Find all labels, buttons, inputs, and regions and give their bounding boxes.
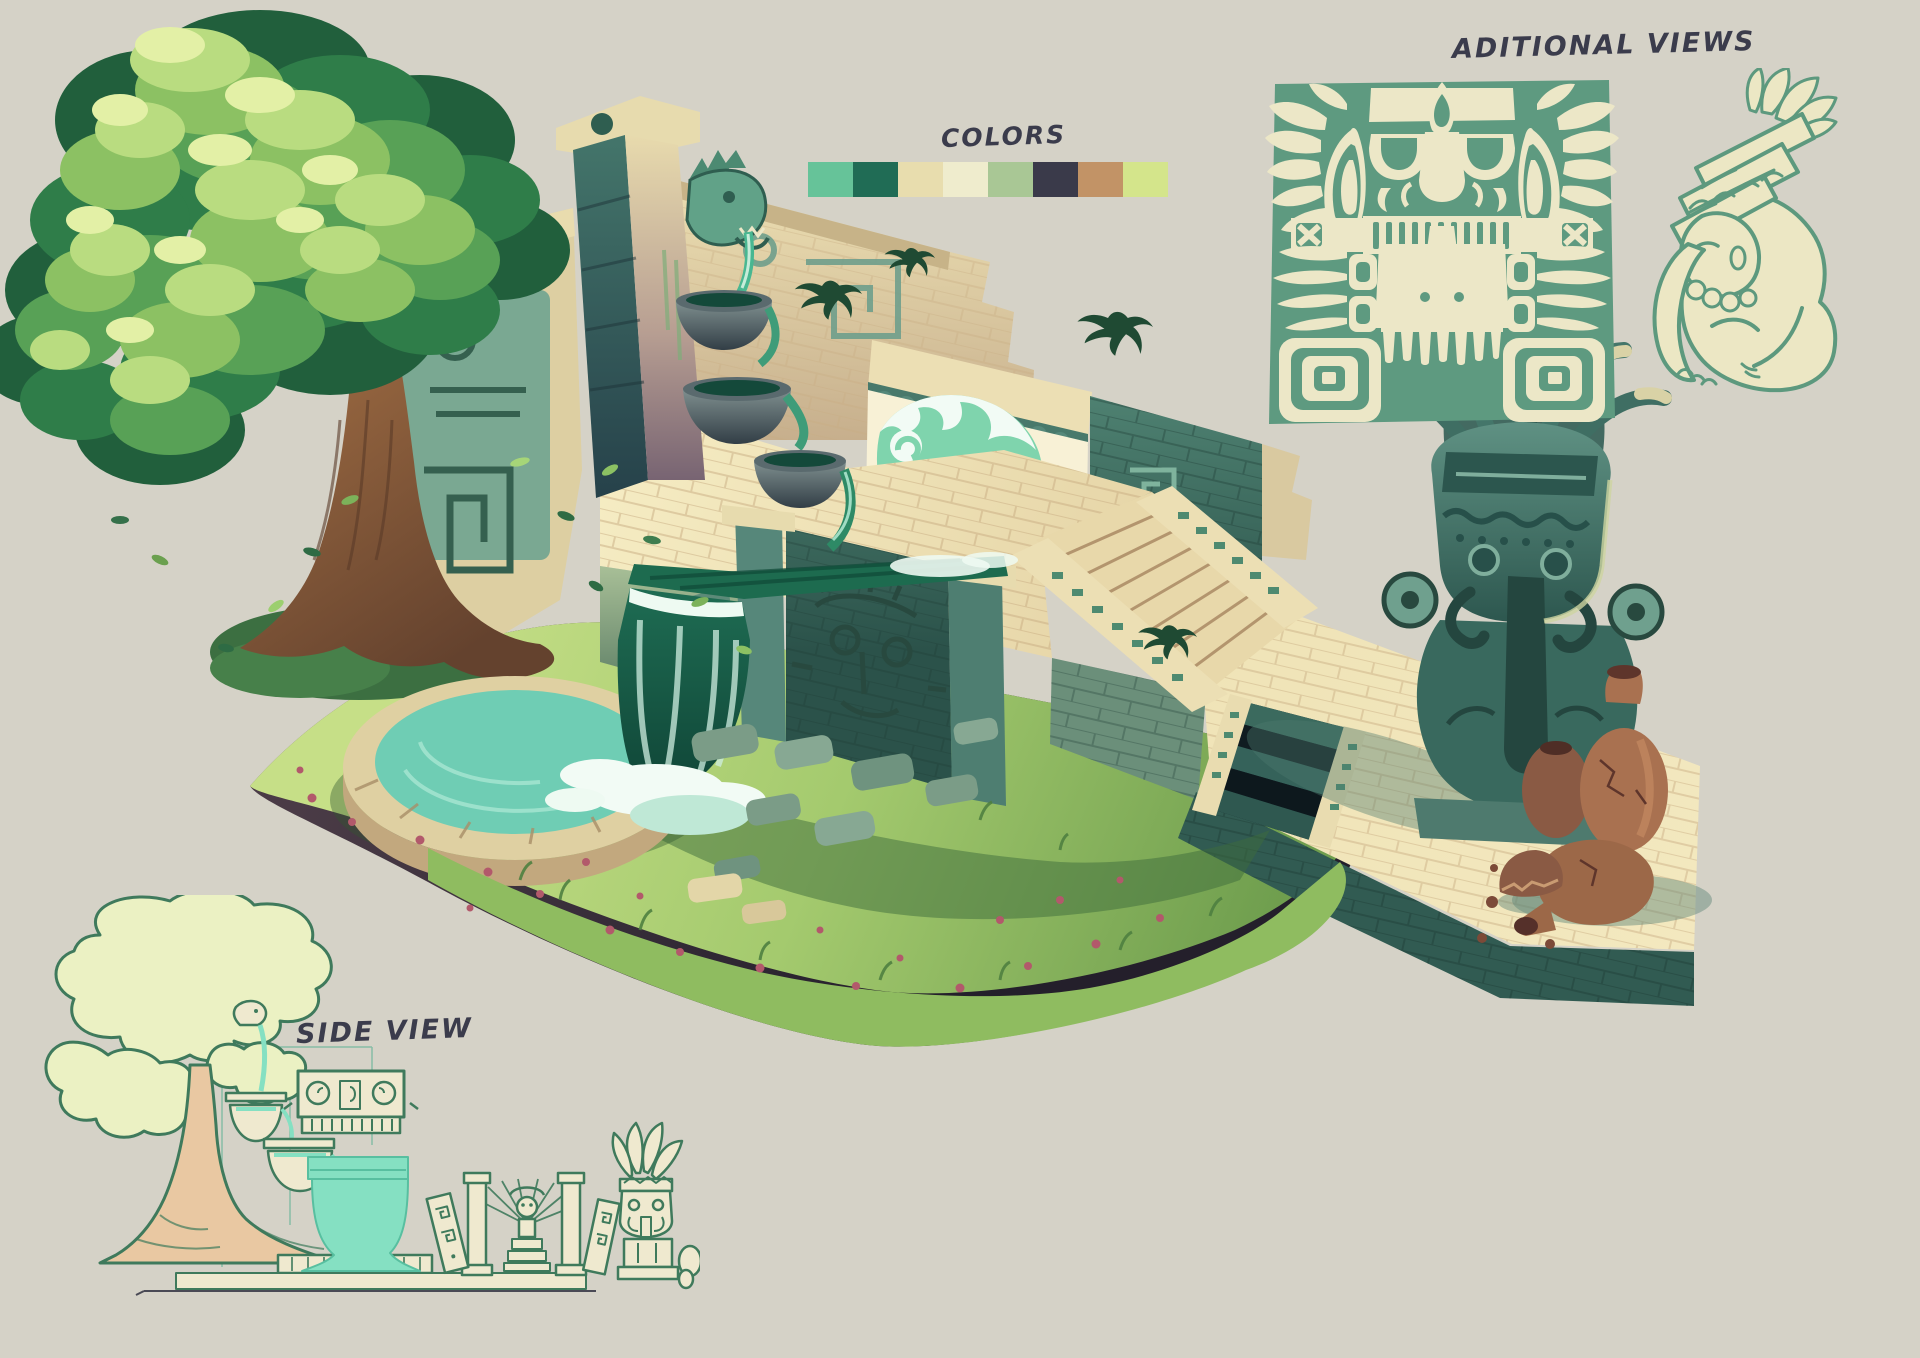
palette-swatch-mint xyxy=(808,162,853,197)
palette-swatch-tan xyxy=(1078,162,1123,197)
stone-mask-relief xyxy=(1263,76,1621,430)
palette-swatch-dark-green xyxy=(853,162,898,197)
concept-art-sheet: COLORS ADITIONAL VIEWS xyxy=(0,0,1920,1358)
palette-swatch-charcoal xyxy=(1033,162,1078,197)
seated-figure-carving xyxy=(1642,68,1846,408)
palette-swatch-sage xyxy=(988,162,1033,197)
palette-swatch-sand xyxy=(898,162,943,197)
palette-swatch-lime xyxy=(1123,162,1168,197)
colors-title: COLORS xyxy=(941,120,1067,153)
serpent-head-icon xyxy=(687,150,768,248)
palette-swatches xyxy=(808,162,1168,197)
palette-swatch-cream xyxy=(943,162,988,197)
side-view-drawing xyxy=(40,895,700,1315)
